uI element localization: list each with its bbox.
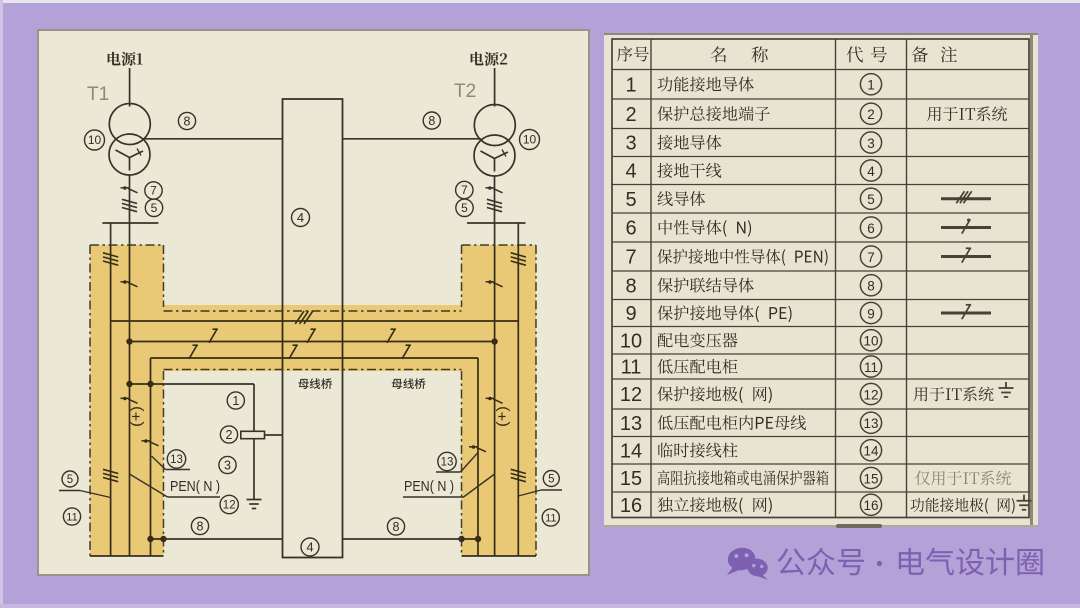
svg-text:11: 11: [864, 360, 878, 375]
svg-text:2: 2: [625, 104, 636, 126]
svg-text:1: 1: [625, 74, 636, 96]
svg-text:13: 13: [620, 413, 642, 435]
svg-text:13: 13: [441, 457, 454, 469]
svg-text:T1: T1: [87, 84, 109, 105]
svg-text:PEN( N ): PEN( N ): [404, 479, 454, 495]
svg-text:4: 4: [867, 164, 875, 179]
svg-text:8: 8: [184, 114, 191, 128]
svg-text:12: 12: [863, 387, 878, 402]
svg-text:6: 6: [625, 218, 636, 240]
svg-text:10: 10: [620, 330, 642, 352]
svg-text:4: 4: [297, 210, 304, 225]
svg-text:T2: T2: [454, 81, 476, 102]
svg-text:12: 12: [620, 384, 642, 406]
svg-text:11: 11: [621, 357, 642, 379]
svg-text:2: 2: [867, 107, 875, 122]
svg-text:14: 14: [620, 440, 642, 462]
svg-text:16: 16: [863, 498, 878, 513]
svg-text:13: 13: [863, 416, 878, 431]
svg-text:16: 16: [620, 495, 642, 517]
svg-text:1: 1: [867, 78, 875, 93]
svg-text:8: 8: [428, 114, 435, 128]
svg-text:3: 3: [224, 458, 231, 472]
svg-text:8: 8: [393, 520, 400, 534]
svg-text:11: 11: [66, 511, 77, 523]
svg-text:6: 6: [867, 221, 875, 236]
svg-text:5: 5: [67, 474, 73, 486]
svg-text:5: 5: [151, 201, 158, 215]
svg-text:7: 7: [867, 250, 875, 265]
svg-text:9: 9: [867, 306, 875, 321]
svg-text:3: 3: [625, 133, 636, 155]
svg-text:3: 3: [867, 136, 875, 151]
svg-text:4: 4: [625, 161, 636, 183]
svg-text:PEN( N ): PEN( N ): [170, 479, 220, 495]
svg-text:10: 10: [523, 133, 537, 147]
svg-text:15: 15: [620, 468, 642, 490]
svg-text:5: 5: [625, 189, 636, 211]
svg-text:9: 9: [625, 303, 636, 325]
svg-text:8: 8: [867, 279, 875, 294]
svg-text:7: 7: [150, 184, 157, 198]
svg-text:14: 14: [863, 444, 879, 459]
svg-text:10: 10: [88, 133, 102, 147]
svg-text:10: 10: [863, 334, 878, 349]
svg-text:5: 5: [867, 192, 875, 207]
svg-text:11: 11: [545, 512, 556, 524]
svg-text:8: 8: [197, 519, 204, 533]
svg-text:4: 4: [306, 540, 313, 555]
svg-text:5: 5: [461, 201, 468, 215]
svg-text:1: 1: [232, 394, 239, 408]
svg-text:7: 7: [461, 183, 468, 197]
svg-text:2: 2: [226, 428, 233, 442]
svg-text:13: 13: [170, 454, 183, 466]
svg-text:8: 8: [625, 275, 636, 297]
svg-text:5: 5: [548, 474, 554, 486]
svg-text:12: 12: [223, 500, 236, 512]
svg-text:7: 7: [625, 247, 636, 269]
svg-text:15: 15: [863, 471, 878, 486]
